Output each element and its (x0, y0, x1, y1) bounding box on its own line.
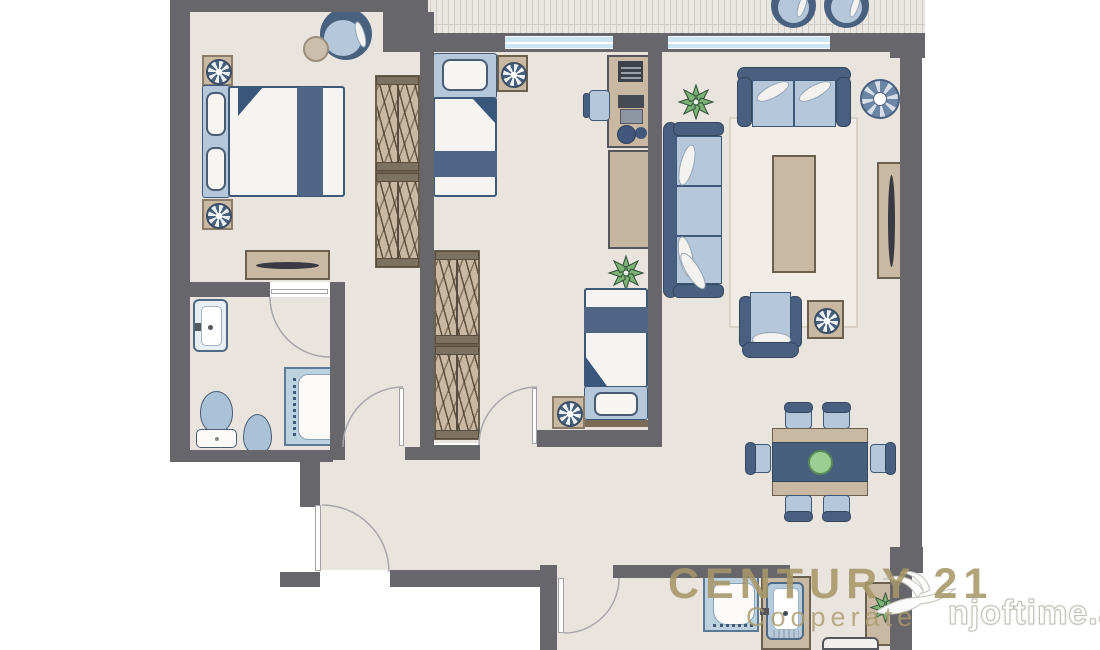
watermark-tagline: Cooperate (746, 602, 917, 633)
door-swing-arcs (0, 0, 1100, 650)
watermark-site: njoftime.al (948, 594, 1100, 633)
floor-plan: CENTURY 21 Cooperate njoftime.al (0, 0, 1100, 650)
